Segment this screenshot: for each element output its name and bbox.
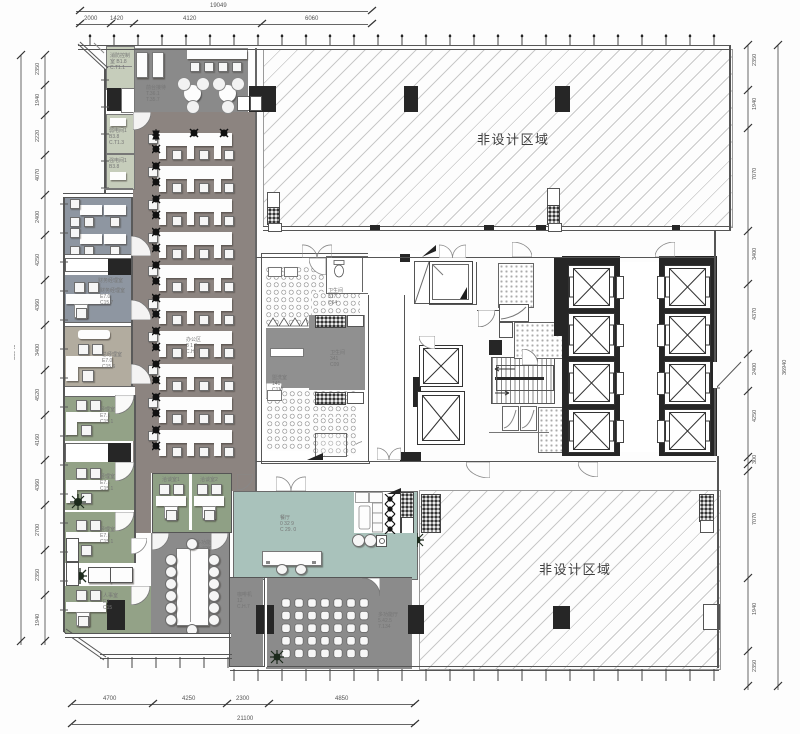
svg-text:4360: 4360: [35, 479, 41, 491]
svg-text:2400: 2400: [35, 211, 41, 223]
svg-text:7070: 7070: [752, 513, 758, 525]
svg-text:1940: 1940: [752, 98, 758, 110]
svg-text:2220: 2220: [35, 130, 41, 142]
svg-text:2400: 2400: [752, 363, 758, 375]
svg-text:36940: 36940: [14, 345, 17, 360]
svg-text:2700: 2700: [35, 524, 41, 536]
svg-text:4360: 4360: [35, 299, 41, 311]
svg-text:1940: 1940: [752, 603, 758, 615]
svg-text:1940: 1940: [35, 94, 41, 106]
svg-text:4520: 4520: [35, 389, 41, 401]
svg-text:4070: 4070: [35, 169, 41, 181]
svg-text:4250: 4250: [35, 254, 41, 266]
svg-text:4370: 4370: [752, 308, 758, 320]
svg-text:2350: 2350: [752, 660, 758, 672]
svg-text:3400: 3400: [35, 344, 41, 356]
svg-text:36940: 36940: [782, 360, 788, 375]
svg-text:2350: 2350: [35, 63, 41, 75]
svg-text:2350: 2350: [35, 569, 41, 581]
svg-text:300: 300: [752, 455, 758, 464]
svg-text:2350: 2350: [752, 54, 758, 66]
svg-text:4160: 4160: [35, 434, 41, 446]
svg-text:7070: 7070: [752, 168, 758, 180]
svg-text:3400: 3400: [752, 248, 758, 260]
svg-text:4250: 4250: [752, 410, 758, 422]
svg-text:1940: 1940: [35, 614, 41, 626]
